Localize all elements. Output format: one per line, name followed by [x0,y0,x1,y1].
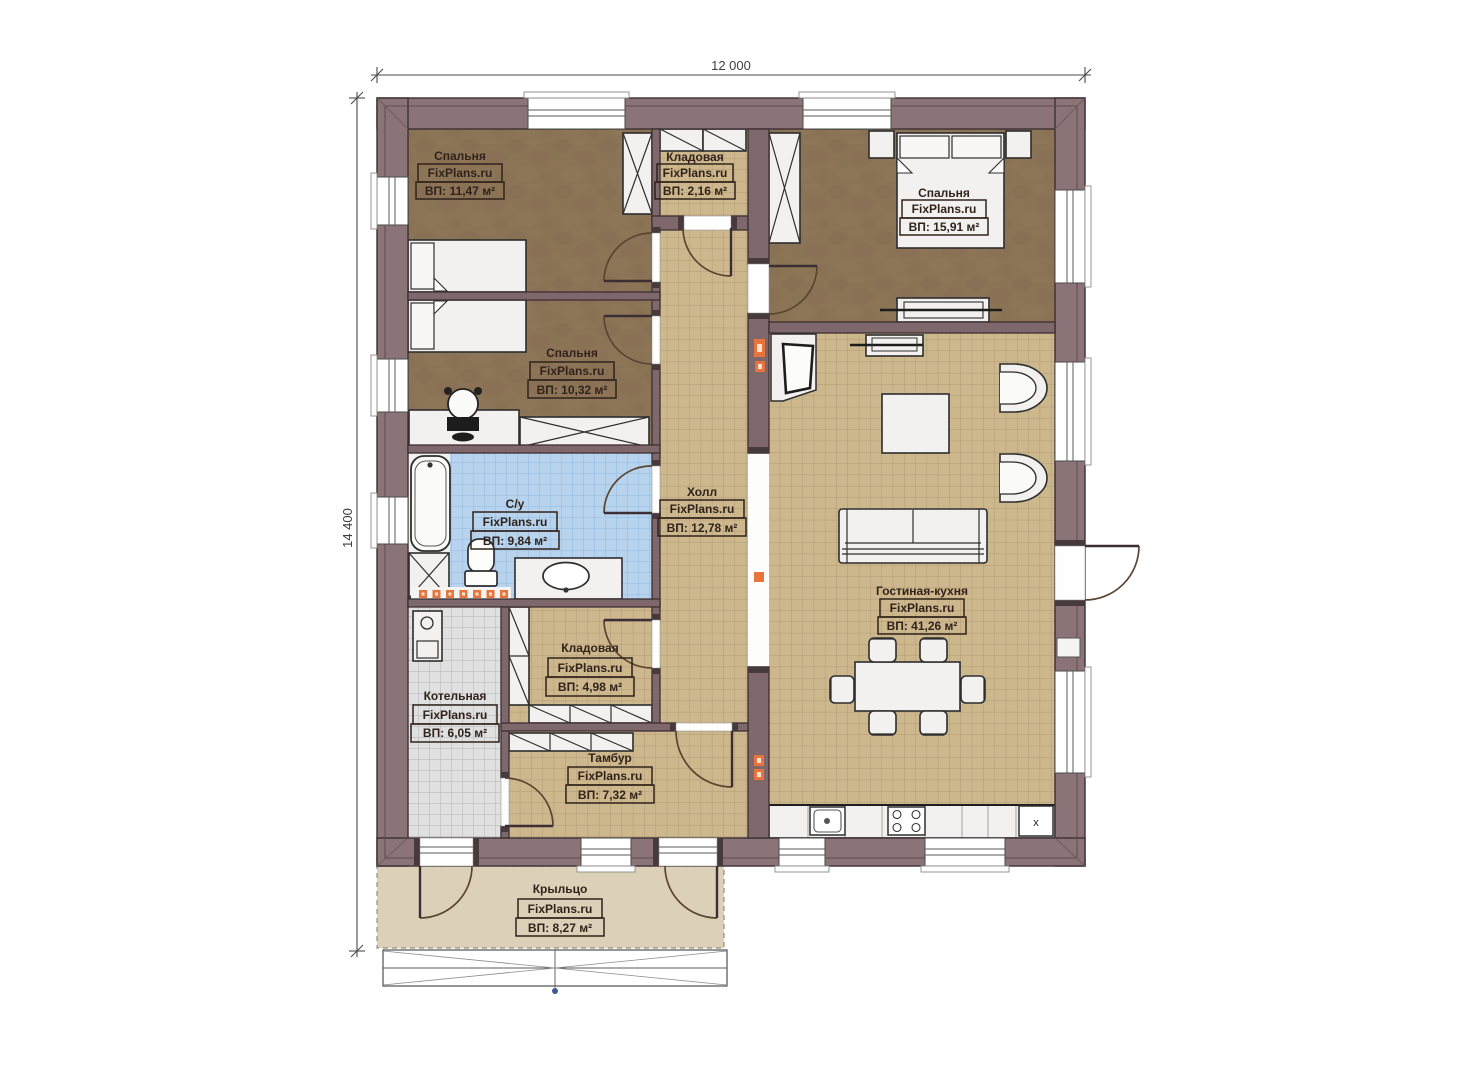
svg-text:FixPlans.ru: FixPlans.ru [540,364,605,378]
svg-text:FixPlans.ru: FixPlans.ru [428,166,493,180]
svg-text:ВП: 2,16 м²: ВП: 2,16 м² [663,184,727,198]
svg-text:Гостиная-кухня: Гостиная-кухня [876,584,968,598]
svg-text:ВП: 11,47 м²: ВП: 11,47 м² [425,184,495,198]
svg-text:ВП: 15,91 м²: ВП: 15,91 м² [909,220,980,234]
svg-text:ВП: 7,32 м²: ВП: 7,32 м² [578,788,642,802]
svg-text:FixPlans.ru: FixPlans.ru [912,202,977,216]
svg-text:FixPlans.ru: FixPlans.ru [423,708,488,722]
svg-text:Крыльцо: Крыльцо [533,882,588,896]
svg-text:FixPlans.ru: FixPlans.ru [483,515,548,529]
svg-text:Спальня: Спальня [546,346,598,360]
svg-text:x: x [1033,817,1039,829]
svg-text:ВП: 41,26 м²: ВП: 41,26 м² [887,619,958,633]
svg-text:FixPlans.ru: FixPlans.ru [663,166,728,180]
svg-text:С/у: С/у [506,497,525,511]
svg-text:FixPlans.ru: FixPlans.ru [890,601,955,615]
svg-text:Кладовая: Кладовая [561,641,618,655]
svg-text:Кладовая: Кладовая [666,150,723,164]
svg-text:ВП: 4,98 м²: ВП: 4,98 м² [558,680,622,694]
svg-text:FixPlans.ru: FixPlans.ru [670,502,735,516]
svg-text:FixPlans.ru: FixPlans.ru [578,769,643,783]
svg-text:FixPlans.ru: FixPlans.ru [558,661,623,675]
svg-text:14 400: 14 400 [340,508,355,548]
svg-text:Спальня: Спальня [918,186,970,200]
svg-text:Тамбур: Тамбур [588,751,632,765]
svg-text:Холл: Холл [687,485,717,499]
svg-text:FixPlans.ru: FixPlans.ru [528,902,593,916]
svg-text:ВП: 9,84 м²: ВП: 9,84 м² [483,534,547,548]
svg-text:12 000: 12 000 [711,58,751,73]
svg-text:Спальня: Спальня [434,149,486,163]
svg-text:ВП: 8,27 м²: ВП: 8,27 м² [528,921,592,935]
svg-text:ВП: 10,32 м²: ВП: 10,32 м² [537,383,608,397]
svg-text:ВП: 6,05 м²: ВП: 6,05 м² [423,726,487,740]
svg-text:ВП: 12,78 м²: ВП: 12,78 м² [667,521,738,535]
svg-text:Котельная: Котельная [424,689,487,703]
